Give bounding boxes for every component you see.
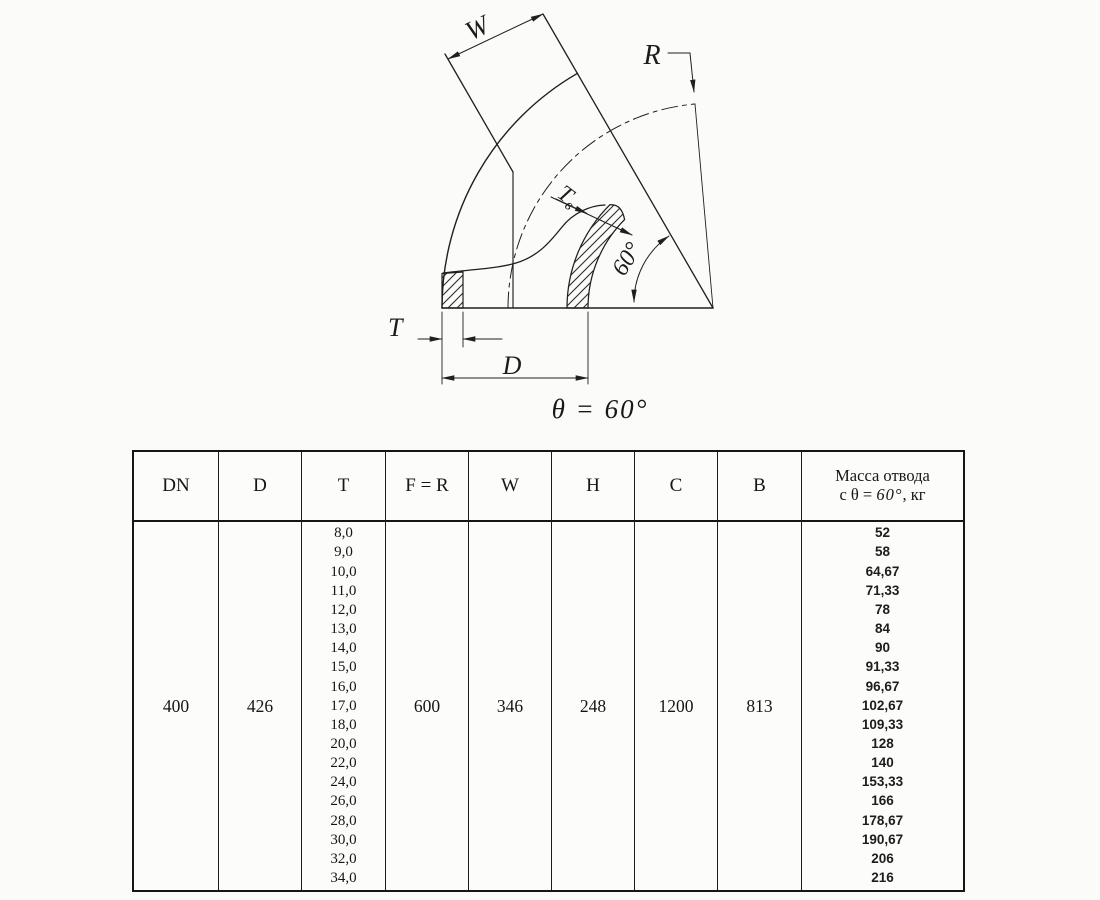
angle-label: 60°: [607, 238, 647, 281]
body-cell-c: 1200: [635, 522, 718, 890]
table-cell-value: 78: [875, 601, 890, 620]
table-cell-value: 190,67: [862, 831, 903, 850]
radius-construction-line: [695, 104, 713, 308]
body-cell-dn: 400: [134, 522, 219, 890]
table-cell-value: 91,33: [866, 658, 900, 677]
table-cell-value: 11,0: [331, 582, 357, 601]
table-cell-value: 109,33: [862, 716, 903, 735]
table-cell-value: 15,0: [330, 658, 356, 677]
body-cell-h: 248: [552, 522, 635, 890]
left-wall-section-hatch: [442, 272, 463, 308]
table-cell-value: 28,0: [330, 812, 356, 831]
r-leader-line: [668, 53, 694, 92]
header-cell-c: C: [635, 452, 718, 522]
header-cell-dn: DN: [134, 452, 219, 522]
tv-dimension-label: Тв: [551, 180, 584, 214]
table-cell-value: 12,0: [330, 601, 356, 620]
table-cell-value: 20,0: [330, 735, 356, 754]
table-cell-value: 14,0: [330, 639, 356, 658]
table-cell-value: 16,0: [330, 678, 356, 697]
t-extension-lines: [442, 312, 463, 384]
table-cell-value: 153,33: [862, 773, 903, 792]
table-cell-value: 90: [875, 639, 890, 658]
table-cell-value: 71,33: [866, 582, 900, 601]
header-cell-t: T: [302, 452, 386, 522]
table-cell-value: 84: [875, 620, 890, 639]
header-cell-d: D: [219, 452, 302, 522]
body-cell-f-r: 600: [386, 522, 469, 890]
table-cell-value: 102,67: [862, 697, 903, 716]
table-cell-value: 32,0: [330, 850, 356, 869]
table-cell-value: 206: [871, 850, 894, 869]
body-cell-d: 426: [219, 522, 302, 890]
w-dimension-label: W: [460, 8, 496, 46]
table-cell-value: 18,0: [330, 716, 356, 735]
body-cell-b: 813: [718, 522, 802, 890]
segment-face-line: [445, 54, 513, 172]
header-cell-w: W: [469, 452, 552, 522]
centerline-arc: [508, 104, 695, 308]
elbow-spec-table: DN D T F = R W H C B Масса отвода с θ = …: [132, 450, 965, 892]
table-cell-value: 216: [871, 869, 894, 888]
body-cell-mass-values: 525864,6771,3378849091,3396,67102,67109,…: [802, 522, 963, 890]
table-cell-value: 13,0: [330, 620, 356, 639]
table-cell-value: 178,67: [862, 812, 903, 831]
table-cell-value: 17,0: [330, 697, 356, 716]
body-cell-t-values: 8,09,010,011,012,013,014,015,016,017,018…: [302, 522, 386, 890]
table-cell-value: 30,0: [330, 831, 356, 850]
table-cell-value: 9,0: [334, 543, 353, 562]
table-cell-value: 140: [871, 754, 894, 773]
mass-header-line1: Масса отвода: [835, 467, 930, 486]
table-cell-value: 26,0: [330, 792, 356, 811]
table-cell-value: 8,0: [334, 524, 353, 543]
table-cell-value: 34,0: [330, 869, 356, 888]
header-cell-mass: Масса отвода с θ = 60°, кг: [802, 452, 963, 522]
t-dimension-label: T: [388, 313, 404, 342]
table-cell-value: 24,0: [330, 773, 356, 792]
elbow-technical-drawing: W R Тв 60° T D: [0, 0, 1100, 445]
table-cell-value: 128: [871, 735, 894, 754]
theta-caption: θ = 60°: [470, 394, 730, 425]
table-cell-value: 52: [875, 524, 890, 543]
table-cell-value: 10,0: [330, 563, 356, 582]
d-dimension-label: D: [502, 351, 522, 380]
table-cell-value: 58: [875, 543, 890, 562]
table-cell-value: 64,67: [866, 563, 900, 582]
header-cell-b: B: [718, 452, 802, 522]
angle-arc: [634, 236, 669, 302]
r-dimension-label: R: [642, 40, 660, 71]
header-cell-f-r: F = R: [386, 452, 469, 522]
header-cell-h: H: [552, 452, 635, 522]
table-cell-value: 22,0: [330, 754, 356, 773]
table-cell-value: 166: [871, 792, 894, 811]
body-cell-w: 346: [469, 522, 552, 890]
mass-header-line2: с θ = 60°, кг: [835, 486, 930, 505]
table-cell-value: 96,67: [866, 678, 900, 697]
